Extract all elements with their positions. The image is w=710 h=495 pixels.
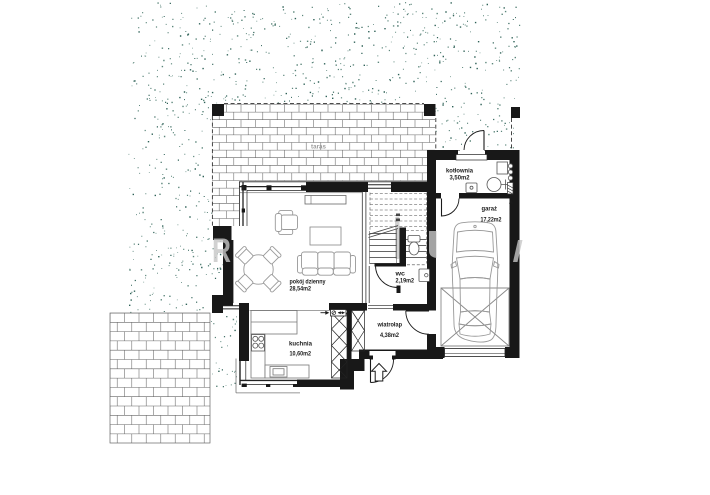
svg-text:2,19m2: 2,19m2 xyxy=(396,278,415,285)
svg-text:taras: taras xyxy=(311,144,327,151)
svg-text:wc: wc xyxy=(394,271,405,278)
svg-text:28,54m2: 28,54m2 xyxy=(290,286,312,293)
svg-text:kotłownia: kotłownia xyxy=(446,167,473,174)
svg-text:4,38m2: 4,38m2 xyxy=(380,332,399,339)
svg-text:10,60m2: 10,60m2 xyxy=(290,350,312,357)
svg-text:wiatrołap: wiatrołap xyxy=(377,322,402,329)
svg-text:pokój dzienny: pokój dzienny xyxy=(290,278,326,285)
svg-text:kuchnia: kuchnia xyxy=(289,340,312,347)
svg-text:17,22m2: 17,22m2 xyxy=(481,216,502,223)
svg-text:garaż: garaż xyxy=(482,206,498,213)
svg-text:3,50m2: 3,50m2 xyxy=(450,174,470,181)
svg-text:R: R xyxy=(212,232,231,270)
